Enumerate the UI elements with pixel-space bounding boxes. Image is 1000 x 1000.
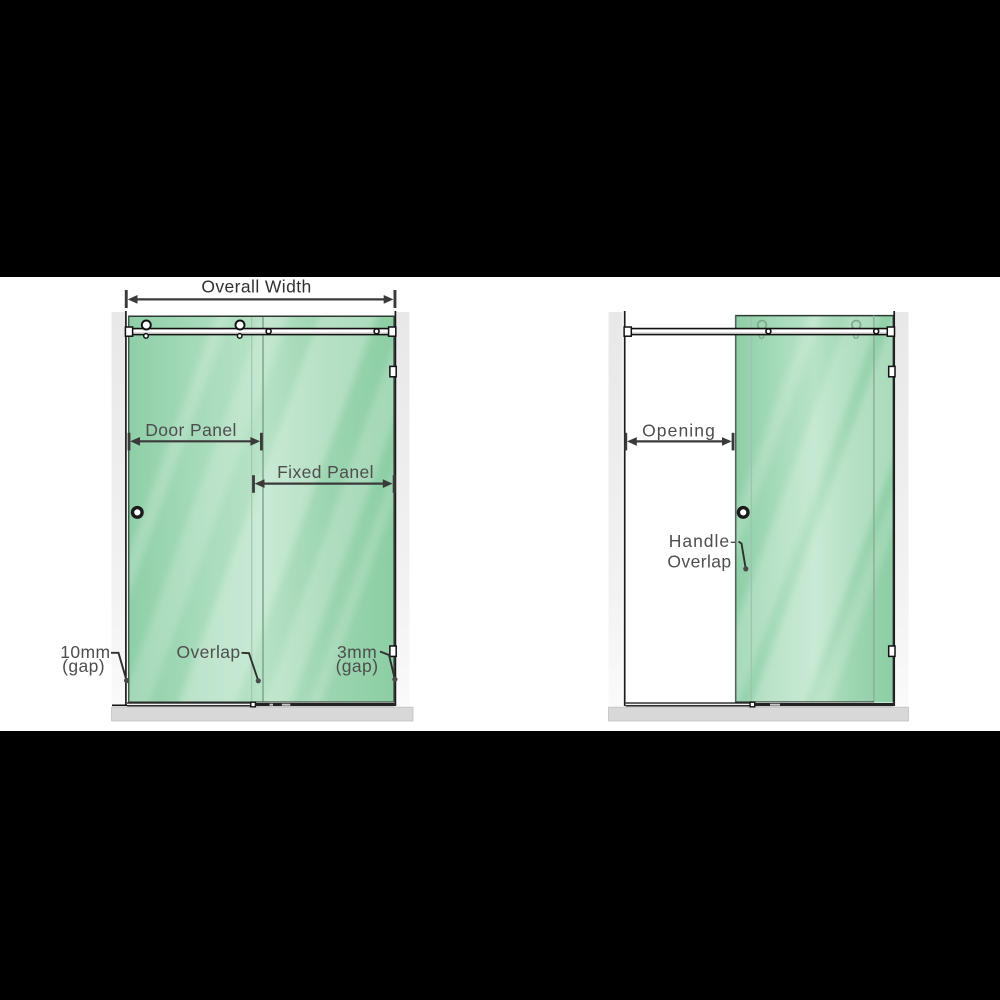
svg-text:Fixed Panel: Fixed Panel [277, 462, 374, 482]
svg-text:Opening: Opening [642, 421, 716, 441]
svg-text:Door Panel: Door Panel [145, 420, 237, 440]
svg-text:Handle-: Handle- [669, 531, 737, 551]
svg-text:Overlap: Overlap [667, 551, 731, 571]
svg-text:Overlap: Overlap [176, 642, 240, 662]
svg-text:(gap): (gap) [336, 656, 379, 676]
svg-text:Overall Width: Overall Width [201, 277, 311, 297]
svg-text:(gap): (gap) [62, 656, 105, 676]
